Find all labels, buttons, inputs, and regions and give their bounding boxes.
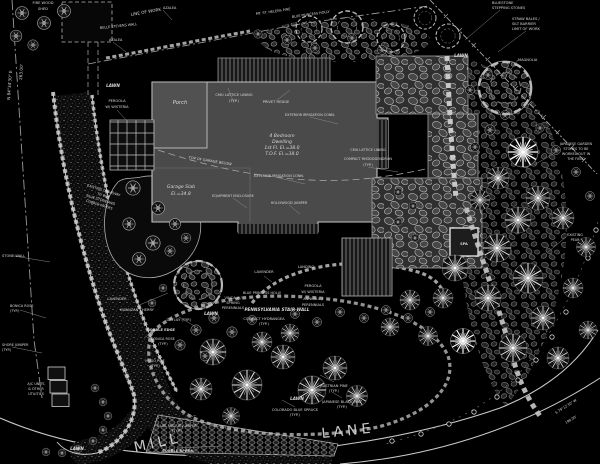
label-lawn-2: LAWN <box>454 53 468 58</box>
label-stepping-stones-2: STEPPING STONES <box>492 6 526 10</box>
label-lavender-1: LAVENDER <box>254 270 274 274</box>
label-shed-2: SHED <box>38 7 48 11</box>
label-hydrangea: COMPACT HYDRANGEA <box>243 317 285 321</box>
label-ac-2: & OTHER <box>28 387 44 391</box>
label-shore-juniper-typ: (TYP.) <box>2 348 12 352</box>
label-compact-rhodo-typ: (TYP.) <box>363 163 373 167</box>
label-colorado-spruce: COLORADO BLUE SPRUCE <box>272 408 319 412</box>
label-garage-2: El.=34.8 <box>171 191 191 197</box>
label-azalea-2: AZALEA <box>109 38 123 42</box>
label-equipment: EQUIPMENT ENCLOSURE <box>212 194 254 198</box>
label-ac-3: UTILITIES <box>28 392 44 396</box>
label-bonica-left: BONICA ROSE <box>10 304 34 308</box>
label-stone-wall: STONE WALL <box>2 254 25 258</box>
label-ac-1: A/C UNITS <box>27 382 44 386</box>
label-lawn-1: LAWN <box>106 83 120 88</box>
site-plan-page: FIRE WOOD SHED N 84°34'30" E 263.00' LIN… <box>0 0 600 464</box>
porch-area <box>152 82 207 148</box>
label-jbp-typ: (TYP.) <box>337 405 348 409</box>
label-penn-stair-wall: PENNSYLVANIA STAIR WALL <box>244 307 309 312</box>
label-cmu-top-typ: (TYP.) <box>229 99 240 103</box>
label-pergola-2-2: W/ WISTERIA <box>301 290 325 294</box>
label-cmu-top: CMU LATTICE LINING <box>215 93 252 97</box>
label-cbs-typ: (TYP.) <box>290 413 301 417</box>
label-magnolia: MAGNOLIA <box>518 58 538 62</box>
label-garage-1: Garage Slab <box>167 184 195 190</box>
label-cobble-edge: COBBLE EDGE <box>147 328 176 332</box>
label-jgs-3: WORKED OUT IN <box>562 152 591 156</box>
label-dwelling-3: 1st Fl. El.=38.0 <box>264 145 299 151</box>
label-mugo-typ: (TYP.) <box>150 364 160 368</box>
label-azalea-1: AZALEA <box>163 6 177 10</box>
label-shore-juniper: SHORE JUNIPER <box>2 343 29 347</box>
pergola-structure <box>342 238 392 296</box>
label-mugo-pine: MUGO PINE <box>145 359 165 363</box>
label-austrian-typ: (TYP.) <box>329 389 340 393</box>
label-lavender-2: LAVENDER <box>107 297 127 301</box>
label-dwelling-2: Dwelling <box>272 139 292 145</box>
label-vinca-3: PERENNIALS <box>222 306 245 310</box>
label-stepping-stones-1: BLUESTONE <box>492 1 514 5</box>
label-annuals-1: ANNUALS / <box>303 297 323 301</box>
label-jap-black-pine: JAPANESE BLACK PINE <box>321 400 362 404</box>
label-lawn-5: LAWN <box>70 446 84 451</box>
label-austrian-pine: AUSTRIAN PINE <box>320 384 348 388</box>
label-landing: LANDING <box>298 265 315 269</box>
label-straw-bales-2: SILT BARRIER <box>512 22 536 26</box>
label-pear-2: PEAR <box>571 238 581 242</box>
label-cobble-apron: COBBLE APRON <box>162 449 193 453</box>
label-jgs-1: JAPANESE GARDEN <box>559 142 593 146</box>
label-spa: SPA <box>460 242 468 246</box>
label-bonica-2: BONICA ROSE <box>151 337 175 341</box>
label-pear-1: EXISTING <box>567 233 583 237</box>
label-jgs-2: STONES TO BE <box>563 147 588 151</box>
label-irrigation-2: EXTERIOR IRRIGATION CONN. <box>254 174 304 178</box>
label-vinca-1: VINCA W/ <box>224 296 242 300</box>
label-compact-rhodo: COMPACT RHODODENDRON <box>344 157 392 161</box>
label-hydrangea-typ: (TYP.) <box>259 322 270 326</box>
label-bonica-2-typ: (TYP.) <box>158 342 168 346</box>
label-cmu-right: CMU LATTICE LINING <box>350 148 386 152</box>
label-lawn-4: LAWN <box>290 396 304 401</box>
left-pergola-structure <box>110 120 154 170</box>
label-pergola-left-1: PERGOLA <box>108 99 126 103</box>
label-bonica-left-typ: (TYP.) <box>10 309 20 313</box>
label-blue-princess-holly-2: BLUE PRINCESS HOLLY <box>243 291 282 295</box>
label-dwelling-4: T.O.F. El.=38.0 <box>265 151 298 157</box>
label-porch: Porch <box>173 100 188 106</box>
label-pergola-left-2: W/ WISTERIA <box>105 105 129 109</box>
label-dwelling-1: 4 Bedroom <box>269 133 295 139</box>
label-irrigation-1: EXTERIOR IRRIGATION CONN. <box>285 113 335 117</box>
label-kwanzan-cherry: KWANZAN CHERRY <box>120 308 155 312</box>
label-privet-hedge: PRIVET HEDGE <box>263 100 290 104</box>
front-steps <box>238 224 318 234</box>
label-daylily: DAYLILY (TYP.) <box>167 318 193 322</box>
label-straw-bales-1: STRAW BALES / <box>512 17 540 21</box>
label-jgs-4: THE FIELD <box>566 157 585 161</box>
label-shed-1: FIRE WOOD <box>32 1 53 5</box>
upper-flagstone-courtyard <box>376 56 468 114</box>
label-pergola-2-1: PERGOLA <box>304 284 322 288</box>
label-hollywood-juniper: HOLLYWOOD JUNIPER <box>271 201 308 205</box>
site-plan-drawing: FIRE WOOD SHED N 84°34'30" E 263.00' LIN… <box>0 0 600 464</box>
label-blue-pacific: BLUE PACIFIC JUNIPER <box>157 424 197 428</box>
label-lawn-3: LAWN <box>204 311 218 316</box>
label-straw-bales-3: LIMIT OF WORK <box>512 27 540 31</box>
label-vinca-2: SPRING <box>226 301 240 305</box>
label-annuals-2: PERENNIALS <box>302 303 325 307</box>
rear-deck-steps <box>218 58 330 82</box>
